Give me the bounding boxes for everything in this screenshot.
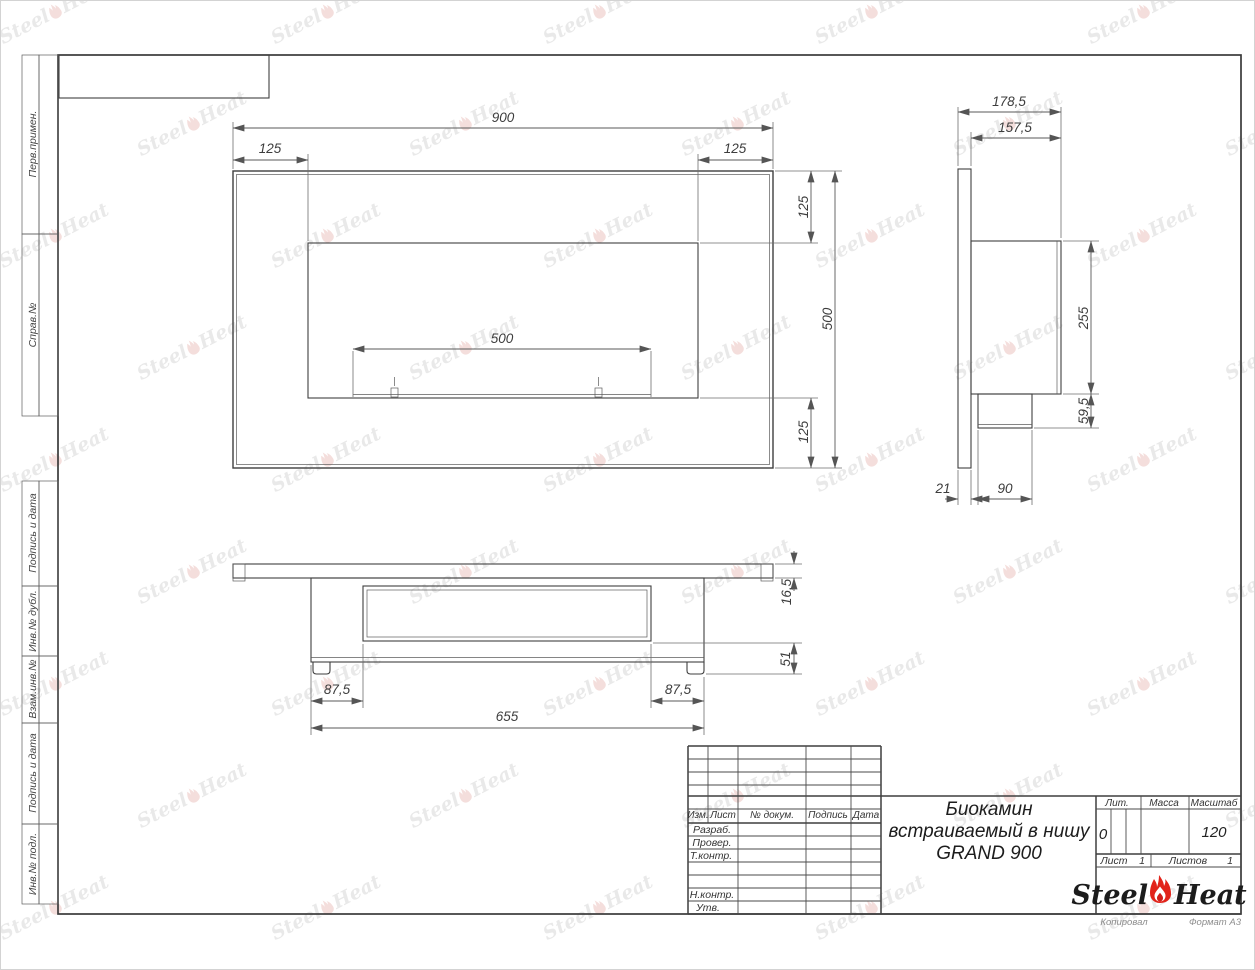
watermark-text-heat: Heat (194, 87, 251, 130)
watermark-proto: Steel Heat (1221, 87, 1255, 161)
dim-bottom-panel-thickness: 16,5 (779, 578, 794, 605)
watermark-proto: Steel Heat (405, 759, 522, 833)
watermark-text-heat: Heat (600, 647, 657, 690)
watermark-proto: Steel Heat (405, 535, 522, 609)
watermark-text-heat: Heat (872, 423, 929, 466)
margin-label-vzam-inv: Взам.инв.№ (27, 659, 39, 718)
burner-clip-left (391, 388, 398, 397)
watermark-text-steel: Steel (811, 901, 869, 945)
watermark-text-heat: Heat (872, 199, 929, 242)
watermark-proto: Steel Heat (1083, 1, 1200, 49)
watermark-proto: Steel Heat (949, 311, 1066, 385)
watermark-proto: Steel Heat (539, 1, 656, 49)
watermark-text-steel: Steel (811, 5, 869, 49)
watermark-text-steel: Steel (539, 901, 597, 945)
watermark-proto: Steel Heat (949, 535, 1066, 609)
margin-label-sprav: Справ.№ (27, 303, 39, 348)
dim-bottom-lower-height: 51 (778, 651, 793, 666)
watermark-proto: Steel Heat (1, 647, 113, 721)
dim-side-total-depth: 178,5 (992, 94, 1026, 109)
burner-clip-right (595, 388, 602, 397)
watermark-proto: Steel Heat (1221, 535, 1255, 609)
row-nkontr: Н.контр. (690, 889, 734, 901)
watermark-text-heat: Heat (56, 199, 113, 242)
watermark-text-heat: Heat (600, 423, 657, 466)
watermark-text-steel: Steel (539, 677, 597, 721)
doc-title-line2: встраиваемый в нишу (888, 821, 1091, 842)
logo-text-steel: Steel (1071, 880, 1148, 911)
watermark-text-heat: Heat (56, 1, 113, 18)
watermark-text-steel: Steel (539, 229, 597, 273)
watermark-proto: Steel Heat (677, 311, 794, 385)
watermark-text-heat: Heat (328, 199, 385, 242)
watermark-text-heat: Heat (872, 1, 929, 18)
watermark-proto: Steel Heat (1221, 311, 1255, 385)
watermark-proto: Steel Heat (539, 199, 656, 273)
watermark-text-steel: Steel (405, 565, 463, 609)
watermark-text-heat: Heat (1144, 199, 1201, 242)
watermark-text-steel: Steel (267, 901, 325, 945)
logo-flame-icon (1150, 875, 1171, 903)
dim-side-panel-thickness: 21 (934, 481, 950, 496)
sheets-label: Листов (1168, 855, 1208, 867)
watermark-proto: Steel Heat (267, 423, 384, 497)
watermark-text-heat: Heat (1010, 311, 1067, 354)
watermark-text-steel: Steel (1, 453, 53, 497)
watermark-text-heat: Heat (194, 535, 251, 578)
dim-side-burner-box-depth: 90 (997, 481, 1013, 496)
watermark-proto: Steel Heat (811, 199, 928, 273)
row-razrab: Разраб. (693, 824, 731, 836)
watermark-text-steel: Steel (267, 5, 325, 49)
watermark-text-steel: Steel (405, 341, 463, 385)
watermark-proto: Steel Heat (539, 871, 656, 945)
watermark-text-steel: Steel (1, 5, 53, 49)
col-list: Лист (709, 810, 736, 821)
watermark-text-steel: Steel (1083, 229, 1141, 273)
watermark-proto: Steel Heat (811, 871, 928, 945)
watermark-text-heat: Heat (1144, 1, 1201, 18)
watermark-text-steel: Steel (539, 5, 597, 49)
watermark-text-heat: Heat (56, 871, 113, 914)
watermark-proto: Steel Heat (1083, 423, 1200, 497)
dim-side-burner-box-height: 59,5 (1076, 397, 1091, 424)
watermark-proto: Steel Heat (677, 535, 794, 609)
sheets-value: 1 (1227, 855, 1233, 867)
watermark-text-steel: Steel (267, 229, 325, 273)
watermark-proto: Steel Heat (811, 1, 928, 49)
watermark-proto: Steel Heat (267, 199, 384, 273)
watermark-text-steel: Steel (1221, 341, 1255, 385)
margin-label-inv-podl: Инв.№ подл. (27, 833, 39, 895)
watermark-proto: Steel Heat (1, 871, 113, 945)
front-view: 900 125 125 125 500 125 500 (233, 110, 842, 468)
watermark-text-heat: Heat (194, 759, 251, 802)
mass-label: Масса (1149, 798, 1179, 809)
lit-value: 0 (1099, 826, 1108, 843)
sheet-label: Лист (1099, 855, 1127, 867)
watermark-text-steel: Steel (267, 453, 325, 497)
watermark-text-heat: Heat (600, 1, 657, 18)
watermark-text-steel: Steel (677, 565, 735, 609)
watermark-proto: Steel Heat (539, 423, 656, 497)
foot-right (687, 662, 704, 674)
dim-side-body-depth: 157,5 (998, 120, 1032, 135)
col-doc: № докум. (750, 810, 794, 821)
dim-front-total-height: 500 (820, 307, 835, 330)
col-podpis: Подпись (808, 810, 848, 821)
sheet-value: 1 (1139, 855, 1145, 867)
watermark-text-heat: Heat (872, 647, 929, 690)
dim-front-right-offset: 125 (724, 141, 747, 156)
watermark-proto: Steel Heat (1083, 199, 1200, 273)
row-utv: Утв. (695, 902, 720, 914)
watermark-text-steel: Steel (133, 341, 191, 385)
watermark-text-steel: Steel (811, 453, 869, 497)
watermark-text-heat: Heat (600, 871, 657, 914)
watermark-text-steel: Steel (1083, 453, 1141, 497)
watermark-text-heat: Heat (328, 1, 385, 18)
watermark-proto: Steel Heat (267, 1, 384, 49)
scale-value: 120 (1201, 824, 1227, 841)
watermark-text-steel: Steel (1, 901, 53, 945)
watermark-text-heat: Heat (328, 871, 385, 914)
watermark-text-heat: Heat (1144, 647, 1201, 690)
col-data: Дата (852, 810, 880, 821)
watermark-text-heat: Heat (1010, 535, 1067, 578)
watermark-text-steel: Steel (1083, 5, 1141, 49)
scale-label: Масштаб (1191, 797, 1238, 809)
dim-bottom-body-width: 655 (496, 709, 519, 724)
watermark-text-steel: Steel (405, 117, 463, 161)
logo-text-heat: Heat (1173, 880, 1247, 911)
lit-label: Лит. (1104, 798, 1128, 809)
watermark-proto: Steel Heat (405, 311, 522, 385)
margin-label-perv-primen: Перв.примен. (27, 111, 39, 178)
watermark-proto: Steel Heat (1083, 647, 1200, 721)
doc-title-line1: Биокамин (945, 799, 1033, 820)
watermark-proto: Steel Heat (133, 759, 250, 833)
dim-side-body-height: 255 (1076, 306, 1091, 330)
dim-front-left-offset: 125 (259, 141, 282, 156)
watermark-text-steel: Steel (1221, 117, 1255, 161)
watermark-text-steel: Steel (949, 565, 1007, 609)
dim-front-top-offset: 125 (796, 195, 811, 218)
watermark-text-heat: Heat (56, 647, 113, 690)
drawing-sheet: Steel Heat Steel Heat Steel Heat Steel H… (0, 0, 1255, 970)
watermark-text-steel: Steel (539, 453, 597, 497)
doc-title-line3: GRAND 900 (936, 843, 1042, 864)
dim-bottom-left-inset: 87,5 (324, 682, 351, 697)
watermark-proto: Steel Heat (1, 1, 113, 49)
dim-front-total-width: 900 (492, 110, 515, 125)
watermark-text-steel: Steel (267, 677, 325, 721)
footer-copied-by: Копировал (1100, 917, 1148, 928)
watermark-text-steel: Steel (811, 677, 869, 721)
watermark-text-steel: Steel (133, 117, 191, 161)
row-prover: Провер. (692, 837, 731, 849)
watermark-text-heat: Heat (738, 535, 795, 578)
watermark-text-heat: Heat (738, 311, 795, 354)
foot-left (313, 662, 330, 674)
col-izm: Изм. (687, 810, 708, 821)
watermark-text-heat: Heat (194, 311, 251, 354)
watermark-text-heat: Heat (466, 759, 523, 802)
dim-front-burner-width: 500 (491, 331, 514, 346)
watermark-text-heat: Heat (56, 423, 113, 466)
watermark-text-steel: Steel (133, 789, 191, 833)
row-tkontr: Т.контр. (690, 850, 732, 862)
watermark-proto: Steel Heat (811, 423, 928, 497)
watermark-proto: Steel Heat (1, 423, 113, 497)
margin-label-podpis-data-2: Подпись и дата (27, 733, 39, 813)
watermark-text-steel: Steel (677, 341, 735, 385)
technical-drawing: Steel Heat Steel Heat Steel Heat Steel H… (1, 1, 1255, 970)
watermark-proto: Steel Heat (1, 199, 113, 273)
dim-front-bottom-offset: 125 (796, 420, 811, 443)
watermark-text-steel: Steel (1083, 677, 1141, 721)
watermark-text-heat: Heat (1144, 423, 1201, 466)
dim-bottom-right-inset: 87,5 (665, 682, 692, 697)
watermark-text-steel: Steel (133, 565, 191, 609)
watermark-layer: Steel Heat Steel Heat Steel Heat Steel H… (1, 1, 1255, 945)
watermark-text-steel: Steel (811, 229, 869, 273)
watermark-text-heat: Heat (328, 423, 385, 466)
watermark-text-heat: Heat (600, 199, 657, 242)
footer-format: Формат A3 (1189, 917, 1242, 928)
watermark-text-heat: Heat (738, 87, 795, 130)
watermark-proto: Steel Heat (811, 647, 928, 721)
margin-label-podpis-data-1: Подпись и дата (27, 493, 39, 573)
watermark-text-steel: Steel (1221, 565, 1255, 609)
watermark-proto: Steel Heat (267, 871, 384, 945)
watermark-text-steel: Steel (1, 229, 53, 273)
watermark-text-heat: Heat (466, 535, 523, 578)
watermark-text-steel: Steel (405, 789, 463, 833)
margin-label-inv-dubl: Инв.№ дубл. (27, 590, 39, 652)
